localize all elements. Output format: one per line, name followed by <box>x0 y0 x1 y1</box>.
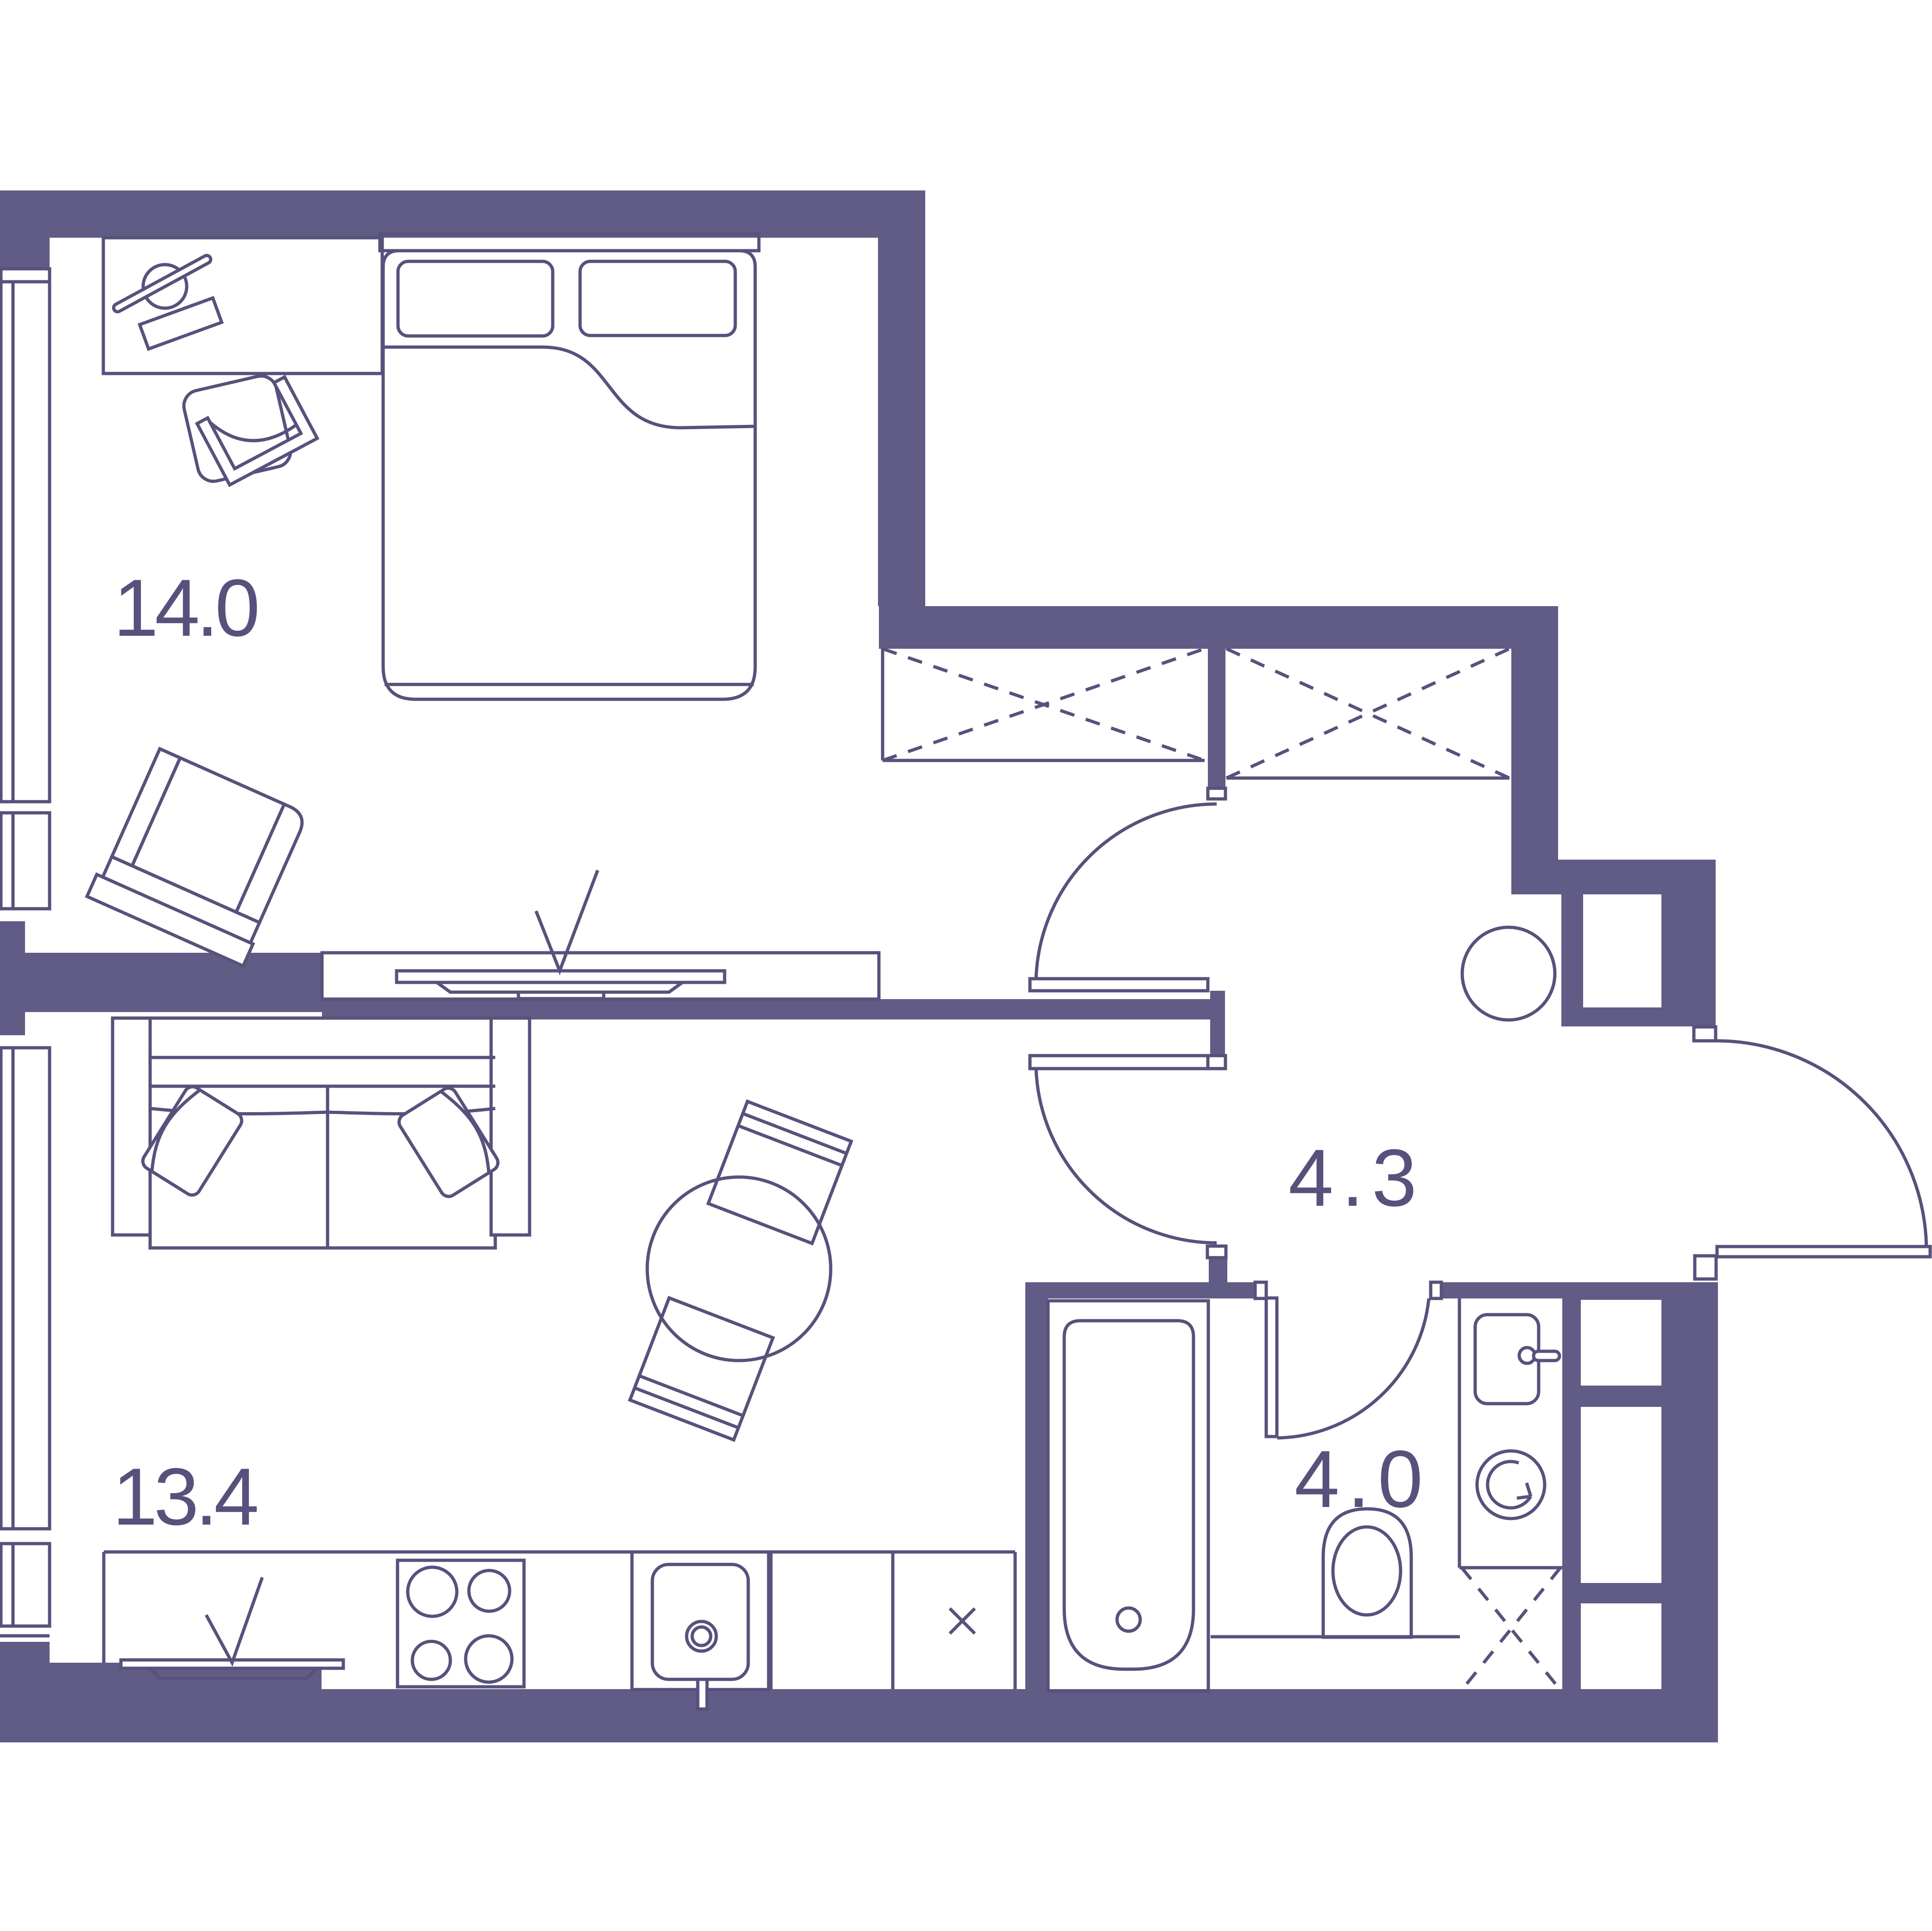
svg-text:13.4: 13.4 <box>113 1452 257 1542</box>
svg-text:4.3: 4.3 <box>1288 1133 1425 1223</box>
svg-text:4.0: 4.0 <box>1294 1434 1431 1525</box>
svg-text:14.0: 14.0 <box>114 563 257 653</box>
